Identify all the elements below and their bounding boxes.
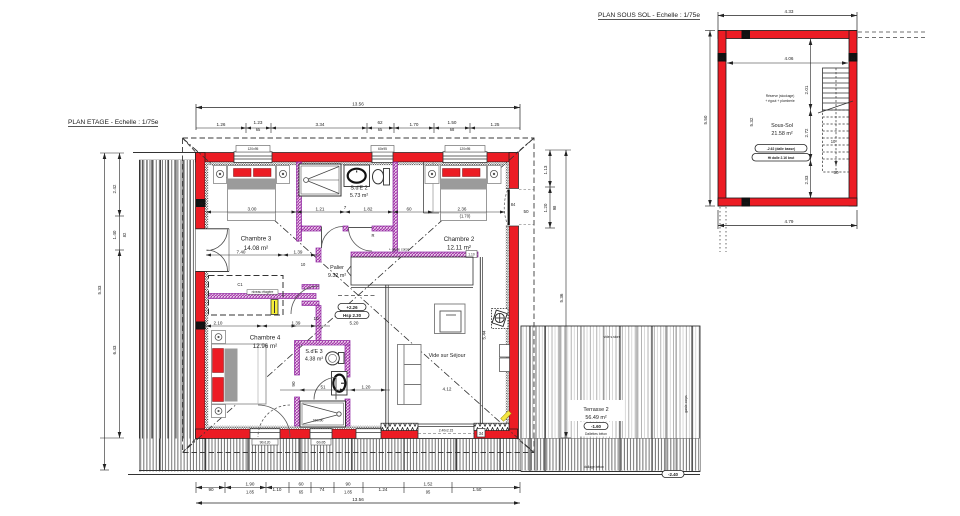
svg-text:C1: C1 <box>237 282 243 287</box>
svg-text:36: 36 <box>199 324 204 329</box>
svg-text:1.85: 1.85 <box>246 490 255 495</box>
svg-text:PLAN SOUS SOL - Echelle : 1/75: PLAN SOUS SOL - Echelle : 1/75e <box>598 12 700 19</box>
svg-text:82: 82 <box>122 232 127 237</box>
svg-text:50: 50 <box>523 209 529 214</box>
svg-text:7: 7 <box>344 205 347 210</box>
svg-text:5.44: 5.44 <box>482 330 487 339</box>
svg-text:65: 65 <box>256 127 261 132</box>
svg-text:95: 95 <box>426 490 431 495</box>
svg-text:2.36: 2.36 <box>458 207 467 212</box>
svg-text:5.33: 5.33 <box>97 285 102 294</box>
svg-text:vide s.store: vide s.store <box>604 335 621 339</box>
svg-text:1.70: 1.70 <box>410 122 419 127</box>
svg-text:120x95: 120x95 <box>460 147 471 151</box>
svg-text:2.33: 2.33 <box>804 175 809 184</box>
svg-text:12.96 m²: 12.96 m² <box>253 343 277 350</box>
svg-text:4.38 m²: 4.38 m² <box>305 357 323 363</box>
svg-text:62: 62 <box>377 120 383 125</box>
svg-text:5.73 m²: 5.73 m² <box>350 193 368 199</box>
svg-text:20: 20 <box>720 56 725 61</box>
svg-text:2.40x2.15: 2.40x2.15 <box>439 428 454 432</box>
svg-text:1.39: 1.39 <box>292 321 301 326</box>
svg-text:1.23: 1.23 <box>254 120 263 125</box>
svg-text:6.43: 6.43 <box>112 345 117 354</box>
svg-text:2.10: 2.10 <box>214 321 223 326</box>
svg-text:garde corps: garde corps <box>684 395 688 413</box>
svg-text:S.d'E 3: S.d'E 3 <box>305 349 322 355</box>
svg-text:-2.40: -2.40 <box>668 472 679 477</box>
svg-text:90: 90 <box>208 487 214 492</box>
svg-text:S.d'E 2: S.d'E 2 <box>350 186 367 192</box>
svg-text:1.82: 1.82 <box>364 207 373 212</box>
svg-text:10: 10 <box>313 316 319 321</box>
svg-text:-1.60: -1.60 <box>591 424 602 429</box>
svg-text:1.50: 1.50 <box>448 120 457 125</box>
svg-text:56.49 m²: 56.49 m² <box>585 415 606 421</box>
svg-text:2.42: 2.42 <box>112 184 117 193</box>
svg-text:2.72: 2.72 <box>804 128 809 137</box>
svg-text:+ égout + plomberie: + égout + plomberie <box>765 99 794 103</box>
svg-text:1.10: 1.10 <box>468 253 475 257</box>
svg-text:21.58 m²: 21.58 m² <box>771 131 792 137</box>
svg-text:10: 10 <box>831 139 836 144</box>
svg-text:Chambre 4: Chambre 4 <box>250 335 281 342</box>
svg-text:Ht dalle 2.16 brut: Ht dalle 2.16 brut <box>768 156 795 160</box>
svg-text:4.12: 4.12 <box>443 387 452 392</box>
svg-text:1.20: 1.20 <box>543 203 548 212</box>
svg-text:4.79: 4.79 <box>785 219 794 224</box>
svg-text:9.32 m²: 9.32 m² <box>328 273 346 279</box>
svg-text:68: 68 <box>450 127 455 132</box>
svg-text:-2.62 (dalle basse): -2.62 (dalle basse) <box>767 147 795 151</box>
svg-text:Chambre 2: Chambre 2 <box>444 236 475 243</box>
svg-text:+2.26: +2.26 <box>346 305 358 310</box>
svg-text:60x95: 60x95 <box>378 147 387 151</box>
svg-text:90x120: 90x120 <box>260 440 271 444</box>
svg-text:dallage béton: dallage béton <box>584 465 604 469</box>
svg-text:Terrasse 2: Terrasse 2 <box>583 407 608 413</box>
svg-text:1.21: 1.21 <box>316 207 325 212</box>
svg-text:50: 50 <box>833 170 839 175</box>
svg-text:4.33: 4.33 <box>785 9 794 14</box>
svg-text:Palier: Palier <box>330 265 344 271</box>
svg-text:74: 74 <box>319 487 325 492</box>
svg-text:26: 26 <box>199 201 204 206</box>
svg-text:12.11 m²: 12.11 m² <box>447 245 471 252</box>
svg-text:Hsp 2.30: Hsp 2.30 <box>343 313 362 318</box>
svg-text:60: 60 <box>406 207 412 212</box>
svg-text:14.08 m²: 14.08 m² <box>244 245 268 252</box>
svg-text:1.52: 1.52 <box>424 482 433 487</box>
svg-text:20: 20 <box>743 201 748 206</box>
svg-text:13.56: 13.56 <box>352 497 364 502</box>
svg-text:R: R <box>372 233 375 238</box>
svg-text:160x90: 160x90 <box>313 419 324 423</box>
svg-text:Dallettes béton: Dallettes béton <box>585 432 607 436</box>
svg-text:1.24: 1.24 <box>379 487 388 492</box>
svg-text:7.40: 7.40 <box>237 250 246 255</box>
svg-text:51: 51 <box>320 385 326 390</box>
svg-text:13.56: 13.56 <box>352 102 364 107</box>
svg-text:20: 20 <box>743 33 748 38</box>
svg-text:3.34: 3.34 <box>316 122 325 127</box>
svg-text:1.39: 1.39 <box>294 250 303 255</box>
svg-text:Vide sur Séjour: Vide sur Séjour <box>429 353 466 359</box>
svg-text:98: 98 <box>552 205 557 210</box>
svg-text:1.26: 1.26 <box>217 122 226 127</box>
svg-text:1.20: 1.20 <box>362 385 371 390</box>
svg-text:1.13: 1.13 <box>543 165 548 174</box>
svg-text:84: 84 <box>511 202 516 207</box>
svg-text:PLAN ETAGE - Echelle : 1/75e: PLAN ETAGE - Echelle : 1/75e <box>68 119 159 126</box>
svg-text:2.01: 2.01 <box>804 85 809 94</box>
svg-text:60: 60 <box>298 482 304 487</box>
svg-text:3.00: 3.00 <box>248 207 257 212</box>
svg-text:5.50: 5.50 <box>703 115 708 124</box>
svg-text:120x95: 120x95 <box>248 147 259 151</box>
svg-text:4.06: 4.06 <box>785 56 794 61</box>
svg-text:90: 90 <box>345 482 351 487</box>
svg-text:5.20: 5.20 <box>350 321 359 326</box>
svg-text:niveau étagère: niveau étagère <box>252 290 274 294</box>
svg-text:Réserve (stockage): Réserve (stockage) <box>766 94 795 98</box>
svg-text:1.40: 1.40 <box>112 230 117 239</box>
svg-text:24: 24 <box>851 56 856 61</box>
svg-text:+ garde corps: + garde corps <box>389 248 410 252</box>
svg-text:34: 34 <box>479 431 484 436</box>
svg-text:90: 90 <box>291 381 296 387</box>
svg-text:1.90: 1.90 <box>246 482 255 487</box>
svg-text:1.25: 1.25 <box>491 122 500 127</box>
svg-text:5.36: 5.36 <box>559 293 564 302</box>
svg-text:Chambre 3: Chambre 3 <box>241 236 272 243</box>
svg-text:65: 65 <box>299 490 304 495</box>
svg-text:5.32: 5.32 <box>749 117 754 126</box>
svg-text:Sous-Sol: Sous-Sol <box>771 123 793 129</box>
svg-text:(1.70): (1.70) <box>460 214 471 219</box>
svg-text:65: 65 <box>378 127 383 132</box>
svg-text:1.50: 1.50 <box>473 487 482 492</box>
svg-text:60x95: 60x95 <box>317 440 326 444</box>
svg-text:1.10: 1.10 <box>273 487 282 492</box>
svg-text:1.85: 1.85 <box>344 490 353 495</box>
svg-text:10: 10 <box>301 262 306 267</box>
